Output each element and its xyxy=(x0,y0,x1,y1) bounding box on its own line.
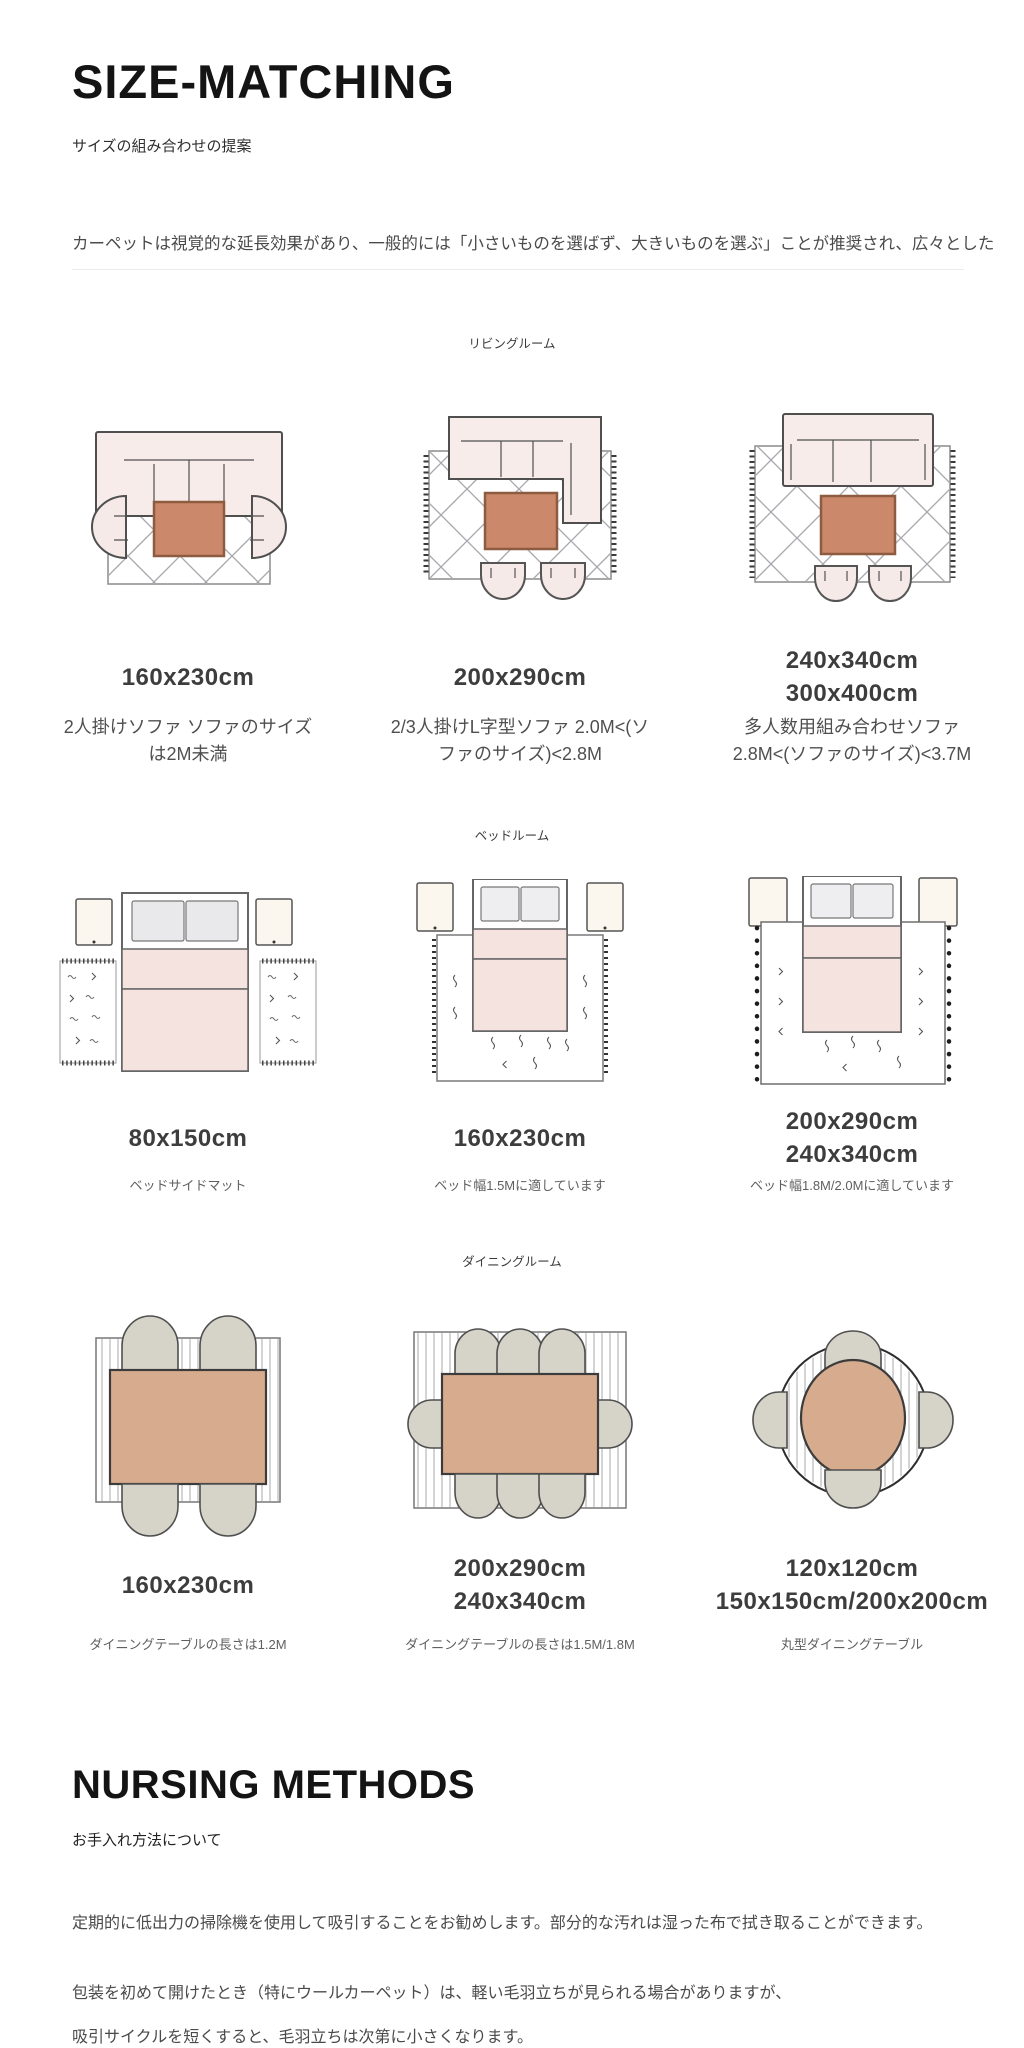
page-subtitle: サイズの組み合わせの提案 xyxy=(72,137,1024,157)
size-description: ベッド幅1.8M/2.0Mに適しています xyxy=(750,1177,954,1194)
rug-size-card: 80x150cm ベッドサイドマット xyxy=(22,876,354,1194)
care-title: NURSING METHODS xyxy=(72,1763,1024,1807)
page-title: SIZE-MATCHING xyxy=(72,56,1024,107)
size-label: 160x230cm xyxy=(122,642,255,712)
care-paragraph: 定期的に低出力の掃除機を使用して吸引することをお勧めします。部分的な汚れは湿った… xyxy=(72,1913,1024,1935)
size-label: 80x150cm xyxy=(129,1103,248,1173)
care-paragraph: 吸引サイクルを短くすると、毛羽立ちは次第に小さくなります。 xyxy=(72,2027,1024,2048)
size-description: 2人掛けソファ ソファのサイズは2M未満 xyxy=(57,714,319,768)
room-label-bedroom: ベッドルーム xyxy=(0,828,1024,844)
bedroom-grid: 80x150cm ベッドサイドマット xyxy=(0,876,1024,1194)
rug-size-card: 160x230cm ベッド幅1.5Mに適しています xyxy=(354,876,686,1194)
bed-large-rug-illustration xyxy=(745,876,960,1091)
intro-text: カーペットは視覚的な延長効果があり、一般的には「小さいものを選ばず、大きいものを… xyxy=(72,233,1024,255)
size-label: 160x230cm xyxy=(122,1550,255,1620)
room-label-dining: ダイニングルーム xyxy=(0,1254,1024,1270)
living-room-grid: 160x230cm 2人掛けソファ ソファのサイズは2M未満 xyxy=(0,408,1024,768)
size-label: 200x290cm 240x340cm xyxy=(786,1103,919,1173)
size-label: 120x120cm 150x150cm/200x200cm xyxy=(716,1550,988,1620)
rug-size-card: 240x340cm 300x400cm 多人数用組み合わせソファ 2.8M<(ソ… xyxy=(686,408,1018,768)
room-label-living: リビングルーム xyxy=(0,336,1024,352)
size-description: 2/3人掛けL字型ソファ 2.0M<(ソファのサイズ)<2.8M xyxy=(389,714,651,768)
living-large-sofa-rug-illustration xyxy=(745,408,960,608)
care-paragraph: 包装を初めて開けたとき（特にウールカーペット）は、軽い毛羽立ちが見られる場合があ… xyxy=(72,1983,1024,2005)
size-description: ダイニングテーブルの長さは1.5M/1.8M xyxy=(405,1636,635,1653)
rug-size-card: 200x290cm 2/3人掛けL字型ソファ 2.0M<(ソファのサイズ)<2.… xyxy=(354,408,686,768)
size-label: 240x340cm 300x400cm xyxy=(786,642,919,712)
bedside-mat-illustration xyxy=(56,876,321,1091)
size-description: ベッドサイドマット xyxy=(129,1177,246,1194)
care-section: NURSING METHODS お手入れ方法について 定期的に低出力の掃除機を使… xyxy=(0,1763,1024,2048)
rug-size-card: 120x120cm 150x150cm/200x200cm 丸型ダイニングテーブ… xyxy=(686,1290,1018,1653)
care-subtitle: お手入れ方法について xyxy=(72,1831,1024,1851)
product-detail-page: SIZE-MATCHING サイズの組み合わせの提案 カーペットは視覚的な延長効… xyxy=(0,0,1024,2048)
bed-medium-rug-illustration xyxy=(415,876,625,1091)
dining-8chair-table-illustration xyxy=(406,1290,634,1550)
size-description: ダイニングテーブルの長さは1.2M xyxy=(89,1636,286,1653)
dining-4chair-table-illustration xyxy=(82,1290,294,1550)
section-divider xyxy=(72,269,964,270)
rug-size-card: 200x290cm 240x340cm ダイニングテーブルの長さは1.5M/1.… xyxy=(354,1290,686,1653)
dining-round-table-illustration xyxy=(745,1290,960,1550)
living-2seat-sofa-rug-illustration xyxy=(76,408,301,608)
size-section-header: SIZE-MATCHING サイズの組み合わせの提案 xyxy=(0,0,1024,157)
size-description: ベッド幅1.5Mに適しています xyxy=(434,1177,606,1194)
size-label: 200x290cm 240x340cm xyxy=(454,1550,587,1620)
living-lshape-sofa-rug-illustration xyxy=(415,408,625,608)
size-label: 200x290cm xyxy=(454,642,587,712)
dining-room-grid: 160x230cm ダイニングテーブルの長さは1.2M xyxy=(0,1290,1024,1653)
rug-size-card: 160x230cm ダイニングテーブルの長さは1.2M xyxy=(22,1290,354,1653)
size-description: 多人数用組み合わせソファ 2.8M<(ソファのサイズ)<3.7M xyxy=(721,714,983,768)
rug-size-card: 200x290cm 240x340cm ベッド幅1.8M/2.0Mに適しています xyxy=(686,876,1018,1194)
size-label: 160x230cm xyxy=(454,1103,587,1173)
rug-size-card: 160x230cm 2人掛けソファ ソファのサイズは2M未満 xyxy=(22,408,354,768)
size-description: 丸型ダイニングテーブル xyxy=(781,1636,923,1653)
